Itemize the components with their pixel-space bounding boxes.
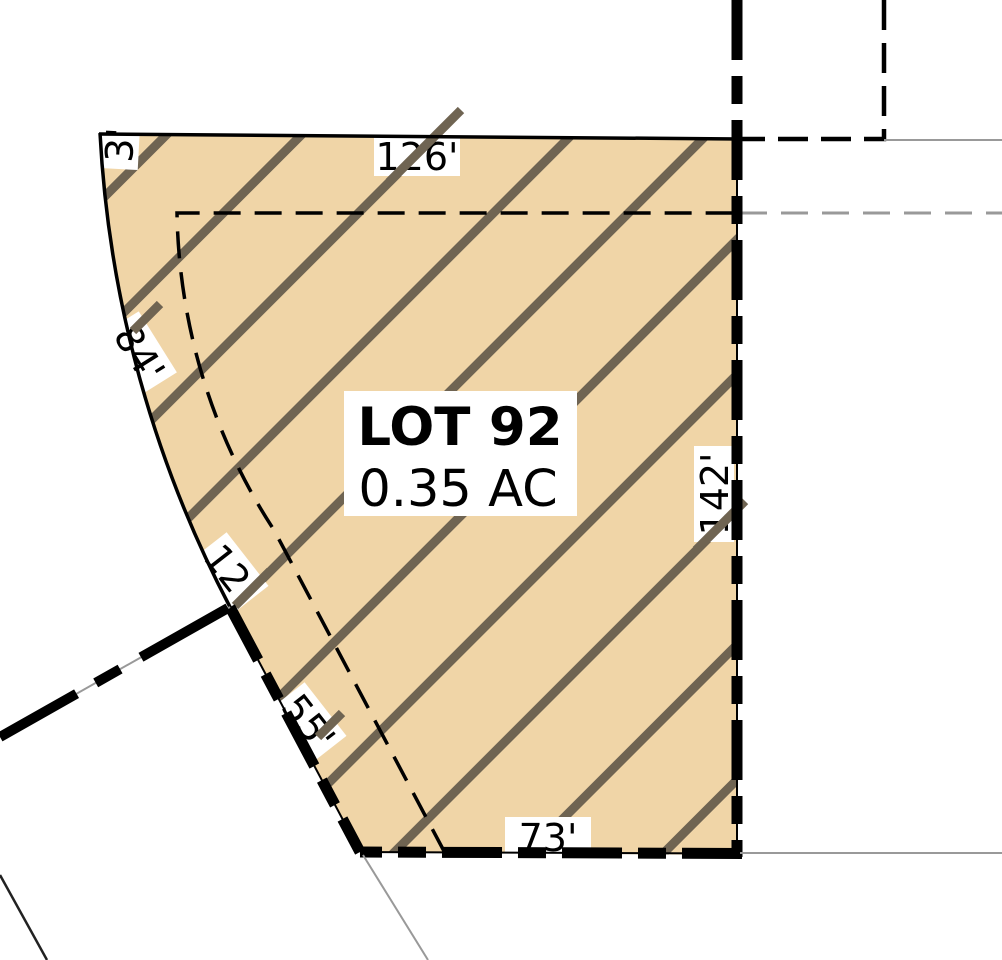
dimension-label-text: 3' xyxy=(97,127,143,164)
plat-map: 126' 3' 84' 12' 55' 73' 142' LOT 92 0.35… xyxy=(0,0,1002,960)
context-line-bottom-left xyxy=(0,875,47,960)
lot-area-text: 0.35 AC xyxy=(358,460,557,519)
road-line-dashed xyxy=(0,608,228,737)
context-line-bottom-corner xyxy=(363,855,428,960)
lot-title-label: LOT 92 0.35 AC xyxy=(344,391,577,519)
plat-map-canvas: 126' 3' 84' 12' 55' 73' 142' LOT 92 0.35… xyxy=(0,0,1002,960)
dimension-label-arc-top: 3' xyxy=(97,120,143,170)
adjacent-boundary-dashed xyxy=(742,0,884,139)
lot-name-text: LOT 92 xyxy=(357,397,562,458)
dimension-label-text: 142' xyxy=(693,453,737,536)
